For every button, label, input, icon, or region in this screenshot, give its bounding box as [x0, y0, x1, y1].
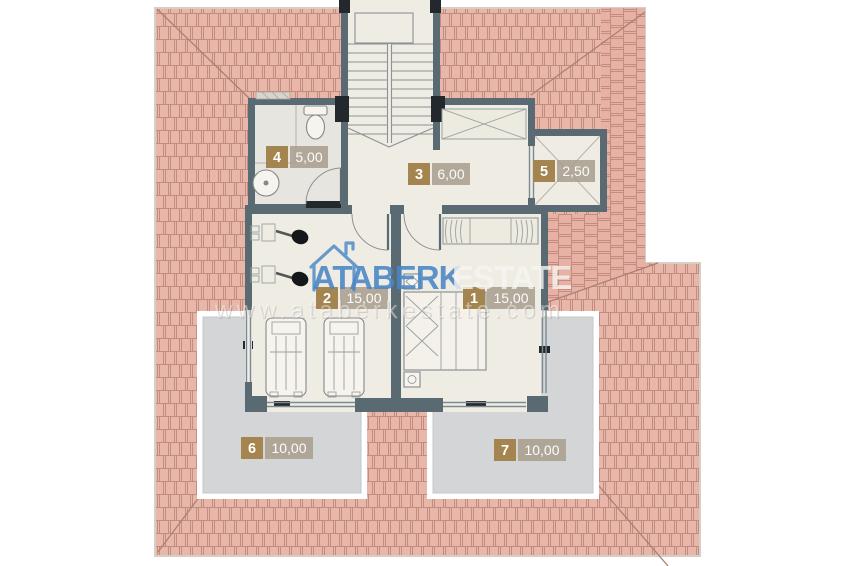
window-mark [539, 346, 550, 353]
wall [600, 129, 607, 212]
wardrobe [443, 218, 538, 244]
lounger [266, 318, 306, 397]
roof-window-hatch [256, 92, 290, 99]
room-label-5: 5 2,50 [533, 160, 595, 182]
room-label-3: 3 6,00 [408, 163, 470, 185]
room-label-4: 4 5,00 [266, 146, 328, 168]
room-label-7: 7 10,00 [494, 439, 566, 461]
wall [433, 0, 440, 150]
watermark-url: www.ataberkestate.com [214, 297, 564, 324]
floorplan-canvas: 4 5,00 3 6,00 5 2,50 2 15,00 1 15,00 [0, 0, 850, 566]
stair-divider-gap [388, 44, 391, 143]
wall-post [339, 0, 350, 13]
hall-closet [442, 109, 526, 139]
wall [436, 98, 535, 105]
room-area: 6,00 [437, 166, 464, 182]
room-area: 5,00 [295, 149, 322, 165]
watermark-brand-primary: ATABERK [312, 259, 463, 296]
wall [355, 398, 443, 412]
room-area: 10,00 [524, 442, 559, 458]
nightstand [404, 372, 420, 387]
wall [248, 98, 255, 212]
room-number: 3 [415, 167, 423, 183]
room-label-6: 6 10,00 [241, 437, 313, 459]
room-number: 6 [248, 441, 256, 457]
room-number: 4 [273, 150, 281, 166]
wall [528, 129, 607, 136]
door-opening [352, 205, 390, 214]
wall-post [335, 96, 349, 122]
wall-post [430, 0, 441, 13]
wall [527, 396, 548, 412]
lounger [324, 318, 364, 397]
room-area: 2,50 [562, 163, 589, 179]
wall [245, 396, 267, 412]
watermark-brand-secondary: ESTATE [452, 259, 571, 296]
door-threshold [306, 201, 341, 208]
shower-basin [253, 170, 279, 196]
door-opening [404, 205, 442, 214]
room-number: 5 [540, 164, 548, 180]
room-area: 10,00 [271, 440, 306, 456]
room-number: 7 [501, 443, 509, 459]
floorplan-svg: 4 5,00 3 6,00 5 2,50 2 15,00 1 15,00 [0, 0, 850, 566]
